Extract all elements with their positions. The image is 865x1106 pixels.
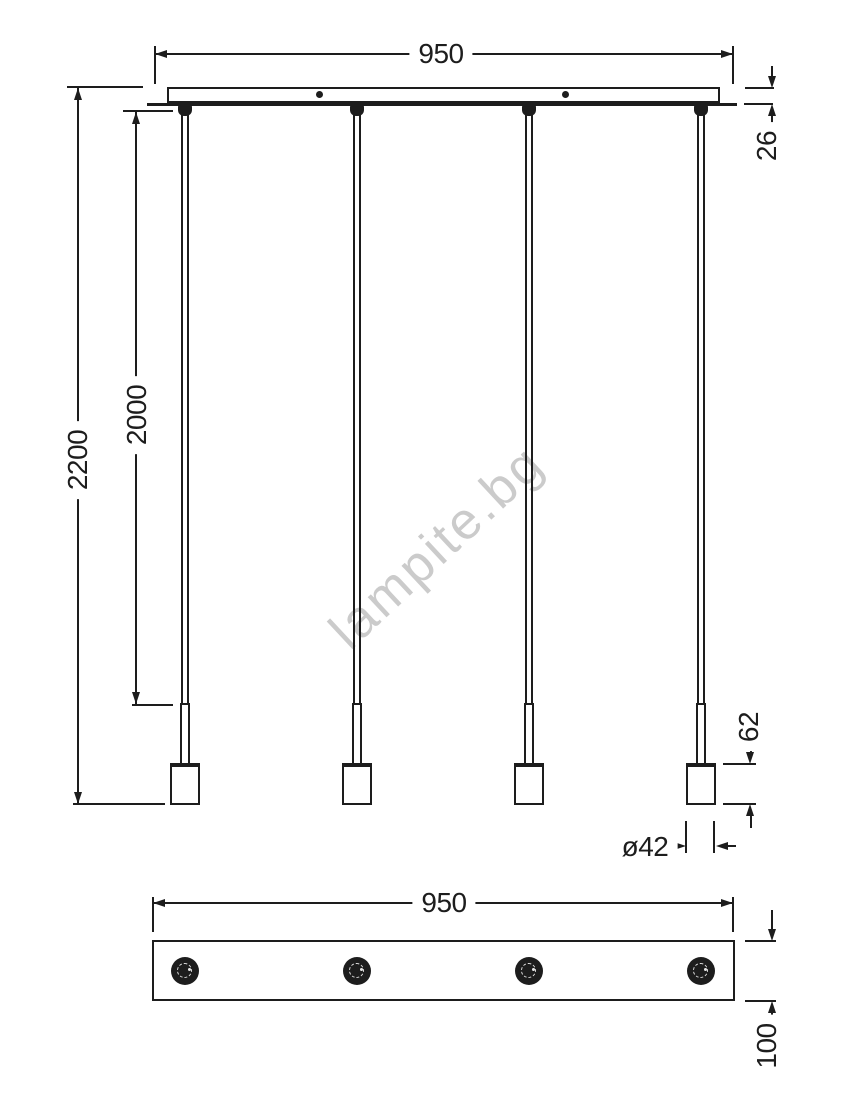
pendant-cable bbox=[525, 115, 533, 704]
socket-dot-icon bbox=[704, 968, 707, 971]
dim-label-canopy-thickness: 26 bbox=[753, 122, 781, 170]
technical-drawing: lampite.bg 950 bbox=[0, 0, 865, 1106]
lamp-holder bbox=[170, 763, 200, 805]
lamp-holder bbox=[686, 763, 716, 805]
extension-line bbox=[123, 110, 173, 112]
lamp-holder bbox=[514, 763, 544, 805]
dimension-line bbox=[727, 845, 736, 847]
dim-label-width: 950 bbox=[409, 40, 472, 68]
arrowhead-down-icon bbox=[768, 76, 776, 88]
cable-grip bbox=[694, 104, 708, 116]
canopy-bottom-face bbox=[152, 940, 735, 1001]
pendant-stem bbox=[180, 703, 190, 765]
socket-dot-icon bbox=[188, 968, 191, 971]
arrowhead-down-icon bbox=[132, 692, 140, 704]
socket-bottom-2 bbox=[343, 957, 371, 985]
pendant-stem bbox=[524, 703, 534, 765]
dim-label-overall-height: 2200 bbox=[64, 421, 92, 499]
socket-dot-icon bbox=[532, 968, 535, 971]
cable-grip bbox=[350, 104, 364, 116]
dim-label-depth: 100 bbox=[753, 1014, 781, 1077]
arrowhead-right-icon bbox=[721, 899, 733, 907]
extension-line bbox=[713, 821, 715, 853]
mounting-hole bbox=[562, 91, 569, 98]
extension-line bbox=[73, 803, 165, 805]
dimension-line bbox=[771, 910, 773, 930]
arrowhead-down-icon bbox=[74, 792, 82, 804]
dimension-line bbox=[750, 816, 752, 828]
pendant-stem bbox=[352, 703, 362, 765]
extension-line bbox=[132, 704, 173, 706]
arrowhead-up-icon bbox=[746, 804, 754, 816]
arrowhead-up-icon bbox=[768, 104, 776, 116]
arrowhead-down-icon bbox=[746, 752, 754, 764]
pendant-stem bbox=[696, 703, 706, 765]
socket-bottom-1 bbox=[171, 957, 199, 985]
socket-bottom-4 bbox=[687, 957, 715, 985]
pendant-cable bbox=[697, 115, 705, 704]
ceiling-canopy bbox=[167, 87, 720, 103]
dim-label-holder-height: 62 bbox=[735, 703, 763, 751]
socket-bottom-3 bbox=[515, 957, 543, 985]
canopy-base-plate bbox=[147, 103, 737, 106]
arrowhead-up-icon bbox=[74, 88, 82, 100]
socket-dot-icon bbox=[360, 968, 363, 971]
arrowhead-left-icon bbox=[153, 899, 165, 907]
pendant-cable bbox=[353, 115, 361, 704]
cable-grip bbox=[522, 104, 536, 116]
dim-label-width-bottom: 950 bbox=[412, 889, 475, 917]
lamp-holder bbox=[342, 763, 372, 805]
dim-label-cable-length: 2000 bbox=[123, 376, 151, 454]
arrowhead-up-icon bbox=[768, 1001, 776, 1013]
arrowhead-down-icon bbox=[768, 929, 776, 941]
arrowhead-left-icon bbox=[155, 50, 167, 58]
arrowhead-left-icon bbox=[716, 842, 728, 850]
cable-grip bbox=[178, 104, 192, 116]
arrowhead-up-icon bbox=[132, 112, 140, 124]
arrowhead-right-icon bbox=[721, 50, 733, 58]
dim-label-holder-diameter: ø42 bbox=[613, 833, 678, 861]
pendant-cable bbox=[181, 115, 189, 704]
mounting-hole bbox=[316, 91, 323, 98]
